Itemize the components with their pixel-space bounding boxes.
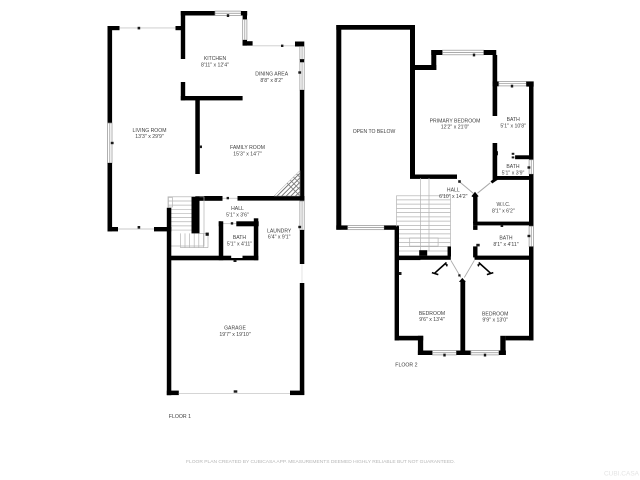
svg-text:FLOOR 2: FLOOR 2 <box>395 362 417 368</box>
svg-text:BATH: BATH <box>507 117 521 123</box>
svg-text:9'9" x 13'0": 9'9" x 13'0" <box>482 318 508 324</box>
svg-text:FLOOR 1: FLOOR 1 <box>169 414 191 420</box>
svg-text:LIVING ROOM: LIVING ROOM <box>133 128 167 134</box>
svg-text:6'4" x 9'1": 6'4" x 9'1" <box>268 235 291 241</box>
svg-text:12'2" x 21'0": 12'2" x 21'0" <box>441 125 470 131</box>
svg-text:OPEN TO BELOW: OPEN TO BELOW <box>353 129 396 135</box>
svg-text:W.I.C.: W.I.C. <box>496 202 510 208</box>
svg-text:BATH: BATH <box>506 164 520 170</box>
svg-text:13'3" x 29'9": 13'3" x 29'9" <box>135 134 164 140</box>
svg-text:KITCHEN: KITCHEN <box>204 56 227 62</box>
svg-text:5'1" x 10'8": 5'1" x 10'8" <box>500 124 526 130</box>
svg-text:BEDROOM: BEDROOM <box>482 311 508 317</box>
svg-text:8'11" x 12'4": 8'11" x 12'4" <box>201 63 229 69</box>
svg-text:8'1" x 6'2": 8'1" x 6'2" <box>492 209 515 215</box>
svg-text:PRIMARY BEDROOM: PRIMARY BEDROOM <box>430 118 481 124</box>
svg-text:5'1" x 3'6": 5'1" x 3'6" <box>226 213 249 219</box>
svg-text:DINING AREA: DINING AREA <box>255 72 288 78</box>
svg-text:FLOOR PLAN CREATED BY CUBICASA: FLOOR PLAN CREATED BY CUBICASA APP. MEAS… <box>186 459 455 465</box>
svg-text:8'1" x 4'11": 8'1" x 4'11" <box>493 242 518 248</box>
svg-text:5'1" x 4'11": 5'1" x 4'11" <box>227 241 252 247</box>
svg-text:5'1" x 3'9": 5'1" x 3'9" <box>502 171 525 177</box>
svg-text:BATH: BATH <box>499 236 513 242</box>
svg-text:HALL: HALL <box>447 188 460 194</box>
svg-text:LAUNDRY: LAUNDRY <box>267 228 292 234</box>
svg-text:19'7" x 19'10": 19'7" x 19'10" <box>219 332 250 338</box>
svg-text:6'10" x 14'2": 6'10" x 14'2" <box>439 194 468 200</box>
svg-text:8'8" x 8'2": 8'8" x 8'2" <box>260 78 283 84</box>
svg-text:CUBI.CASA: CUBI.CASA <box>604 471 640 478</box>
svg-text:15'3" x 14'7": 15'3" x 14'7" <box>233 151 262 157</box>
svg-text:FAMILY ROOM: FAMILY ROOM <box>230 145 265 151</box>
svg-text:9'6" x 13'4": 9'6" x 13'4" <box>419 317 445 323</box>
svg-text:GARAGE: GARAGE <box>224 326 246 332</box>
svg-text:BEDROOM: BEDROOM <box>419 311 445 317</box>
svg-text:BATH: BATH <box>233 235 247 241</box>
svg-text:HALL: HALL <box>231 206 244 212</box>
